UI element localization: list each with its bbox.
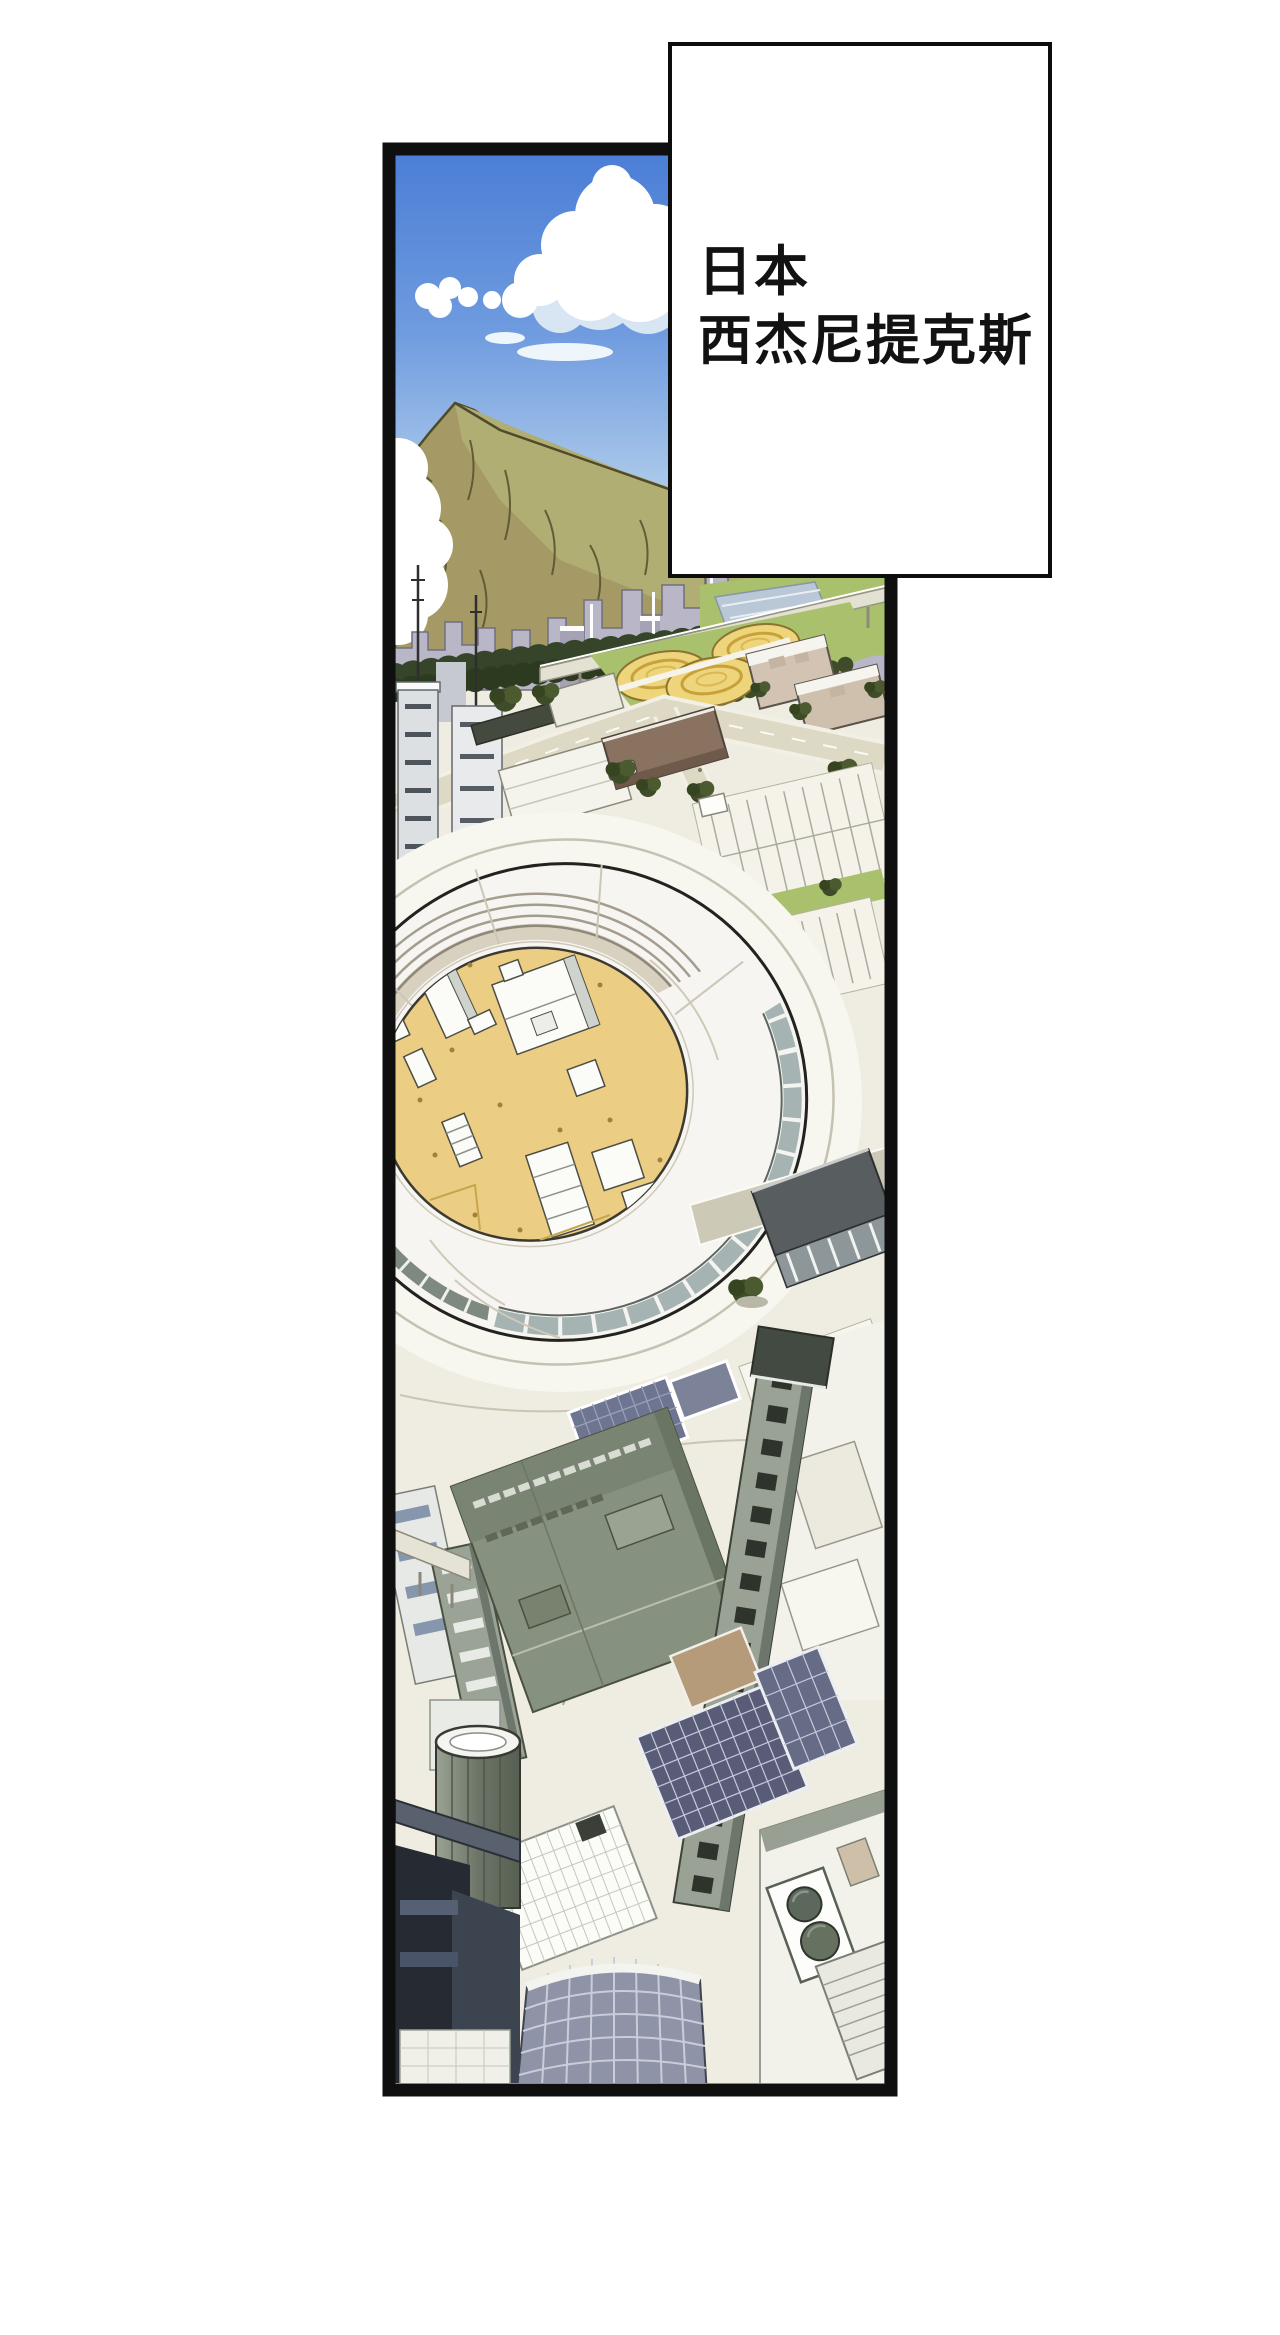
caption-line-company: 西杰尼提克斯	[698, 307, 1048, 376]
comic-page: 日本 西杰尼提克斯	[0, 0, 1280, 2335]
caption-line-country: 日本	[698, 238, 1048, 307]
caption-box: 日本 西杰尼提克斯	[668, 42, 1052, 578]
panel-artwork	[0, 0, 1280, 2335]
right-bottom-buildings	[760, 1790, 928, 2085]
